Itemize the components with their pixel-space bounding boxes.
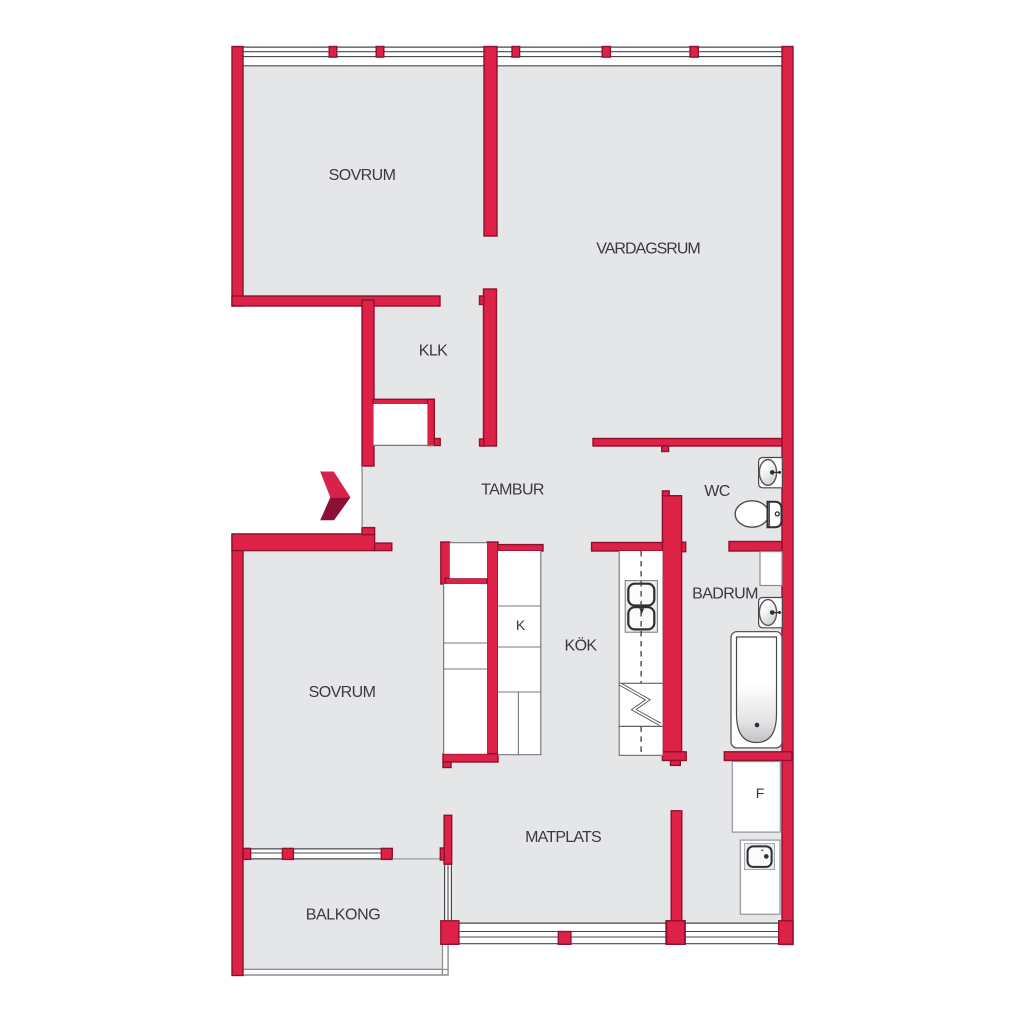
- svg-text:TAMBUR: TAMBUR: [481, 482, 544, 499]
- svg-text:VARDAGSRUM: VARDAGSRUM: [596, 240, 700, 257]
- svg-text:KÖK: KÖK: [565, 637, 598, 655]
- svg-text:SOVRUM: SOVRUM: [329, 167, 396, 184]
- svg-text:K: K: [516, 617, 526, 633]
- svg-text:BADRUM: BADRUM: [692, 585, 758, 602]
- svg-text:WC: WC: [704, 483, 730, 500]
- svg-text:SOVRUM: SOVRUM: [309, 684, 376, 701]
- svg-text:KLK: KLK: [419, 342, 448, 359]
- svg-text:BALKONG: BALKONG: [306, 907, 381, 924]
- svg-text:MATPLATS: MATPLATS: [525, 829, 601, 846]
- svg-text:F: F: [756, 785, 765, 801]
